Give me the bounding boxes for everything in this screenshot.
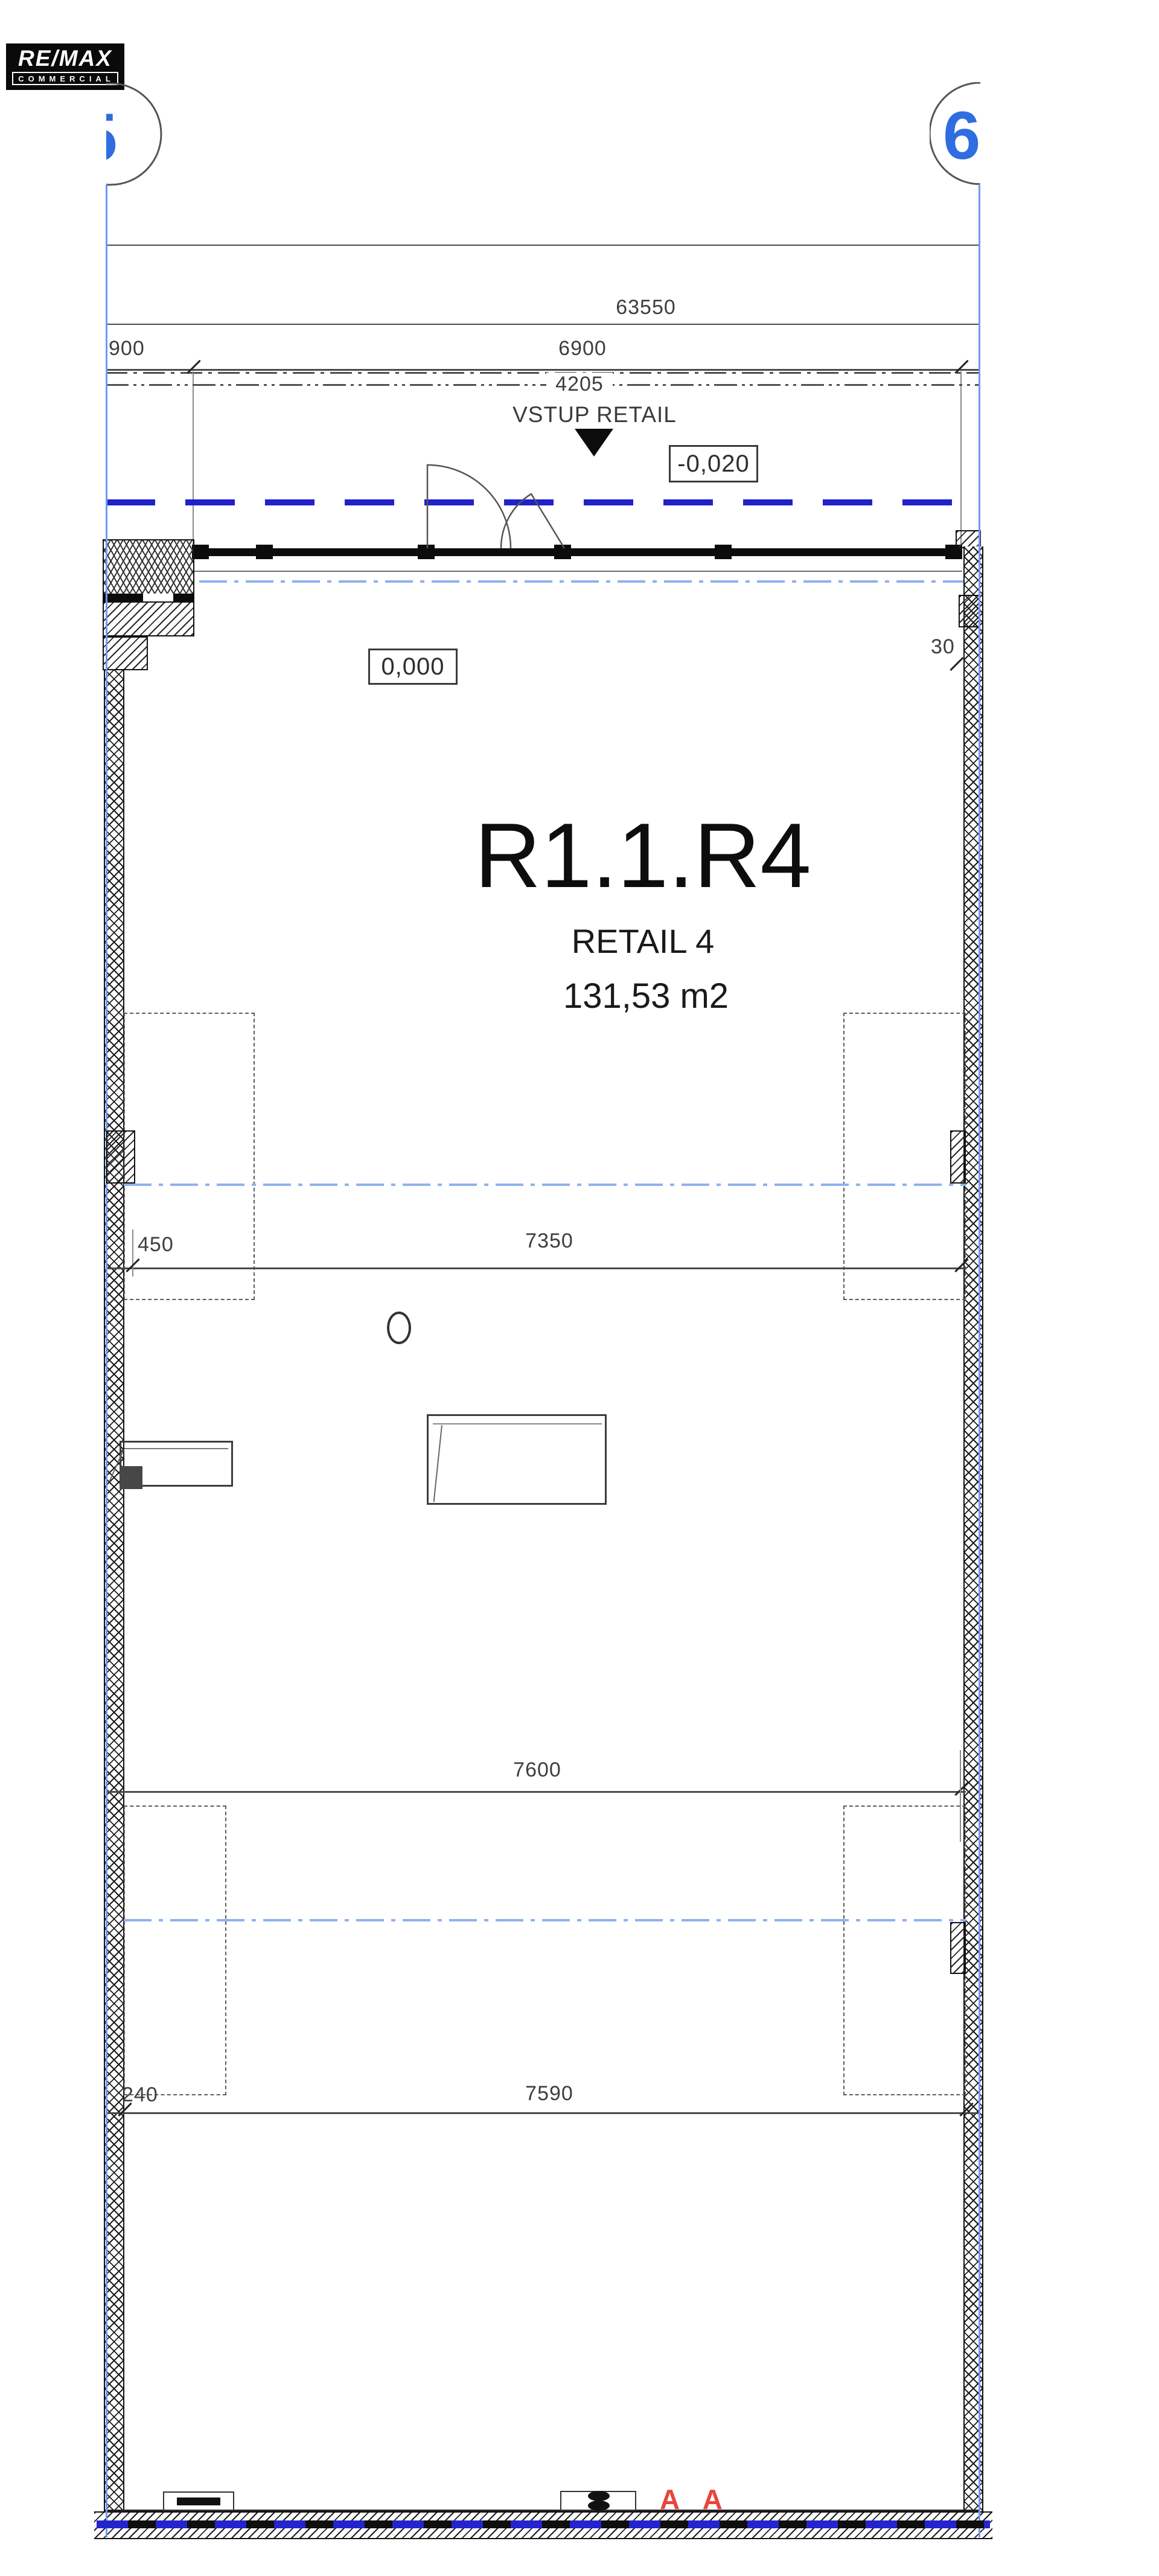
unit-code-label: R1.1.R4 [386,803,899,909]
dim-6900-line [106,369,980,371]
top-reference-line [106,245,980,246]
dim-extension-line [193,371,194,545]
grid-bubble-5: 5 [106,83,164,187]
level-entrance-value: -0,020 [677,450,749,478]
grid-axis-line-6 [979,184,980,2537]
right-wall-pilaster-mid [950,1130,966,1184]
fixture-box-left-bar [177,2498,220,2505]
boundary-dashed-line-bottom [97,2520,990,2528]
dim-30-text: 30 [931,635,955,659]
grid-axis-line-5 [106,185,107,2537]
ceiling-zone-upper-right [843,1013,966,1300]
corner-column-band-gap [143,594,173,601]
dim-extension-line [960,371,962,545]
corner-column-step [103,636,148,670]
dim-7600-line [106,1791,966,1793]
dim-6900-text: 6900 [543,337,622,360]
dim-7600-text: 7600 [495,1758,579,1782]
dim-7350-text: 7350 [507,1229,592,1253]
dim-7350-line [106,1267,966,1269]
axis-dashdot-mid-upper [124,1184,966,1186]
ceiling-zone-lower-left [124,1805,226,2095]
right-wall-cap [956,530,981,548]
corner-column-hatch [103,601,194,636]
ceiling-zone-upper-left [124,1013,255,1300]
floor-plan-canvas: RE/MAX COMMERCIAL 5 6 63550 900 6900 420… [0,0,1159,2576]
dim-4205-line [106,384,980,386]
dim-extension-line [132,1229,133,1277]
dim-4205-text: 4205 [546,373,613,396]
dim-450-text: 450 [138,1233,174,1257]
right-wall-pilaster-low [950,1922,966,1974]
dim-7590-text: 7590 [507,2082,592,2106]
level-floor-value: 0,000 [381,653,444,681]
unit-area-label: 131,53 m2 [477,976,815,1016]
floor-symbol-circle [387,1312,411,1344]
right-wall-pilaster-top [959,595,980,627]
logo-wordmark: RE/MAX [12,47,118,70]
axis-dashdot-mid-lower [124,1919,966,1921]
counter-left-edge [124,1448,228,1449]
axis-dashdot-storefront [199,580,966,583]
level-entrance-box: -0,020 [669,445,758,482]
storefront-mullion [256,545,273,559]
fixture-mid-symbol-top [588,2491,610,2501]
logo-commercial-label: COMMERCIAL [12,72,118,85]
entrance-door-swings [417,446,579,549]
grid-bubble-6-digit: 6 [943,98,980,173]
storefront-inner-line [192,571,962,572]
level-floor-box: 0,000 [368,649,458,685]
right-wall [963,546,983,2512]
section-marks-label: A A [660,2483,731,2516]
facade-axis-dashdot [106,372,980,374]
table-right-edge [433,1423,602,1424]
storefront-mullion [715,545,732,559]
fixture-mid-symbol-bottom [588,2501,610,2511]
corner-column-insulation [103,539,194,595]
ceiling-zone-lower-right [843,1805,966,2095]
dim-tick [950,657,963,671]
grid-bubble-5-digit: 5 [106,100,117,175]
counter-left-block [120,1466,142,1489]
door-leaf-left [427,465,511,548]
unit-name-label: RETAIL 4 [477,921,809,961]
entrance-arrow-icon [575,429,613,457]
entrance-label: VSTUP RETAIL [495,402,694,428]
dim-900-text: 900 [109,337,145,360]
dim-overall-line [106,324,980,325]
left-wall-pilaster [106,1130,135,1184]
table-right [427,1414,607,1505]
dim-7590-line [106,2112,980,2114]
storefront-mullion [192,545,209,559]
dim-overall-text: 63550 [595,296,697,319]
grid-bubble-6: 6 [930,82,980,186]
dim-240-text: 240 [122,2083,158,2107]
